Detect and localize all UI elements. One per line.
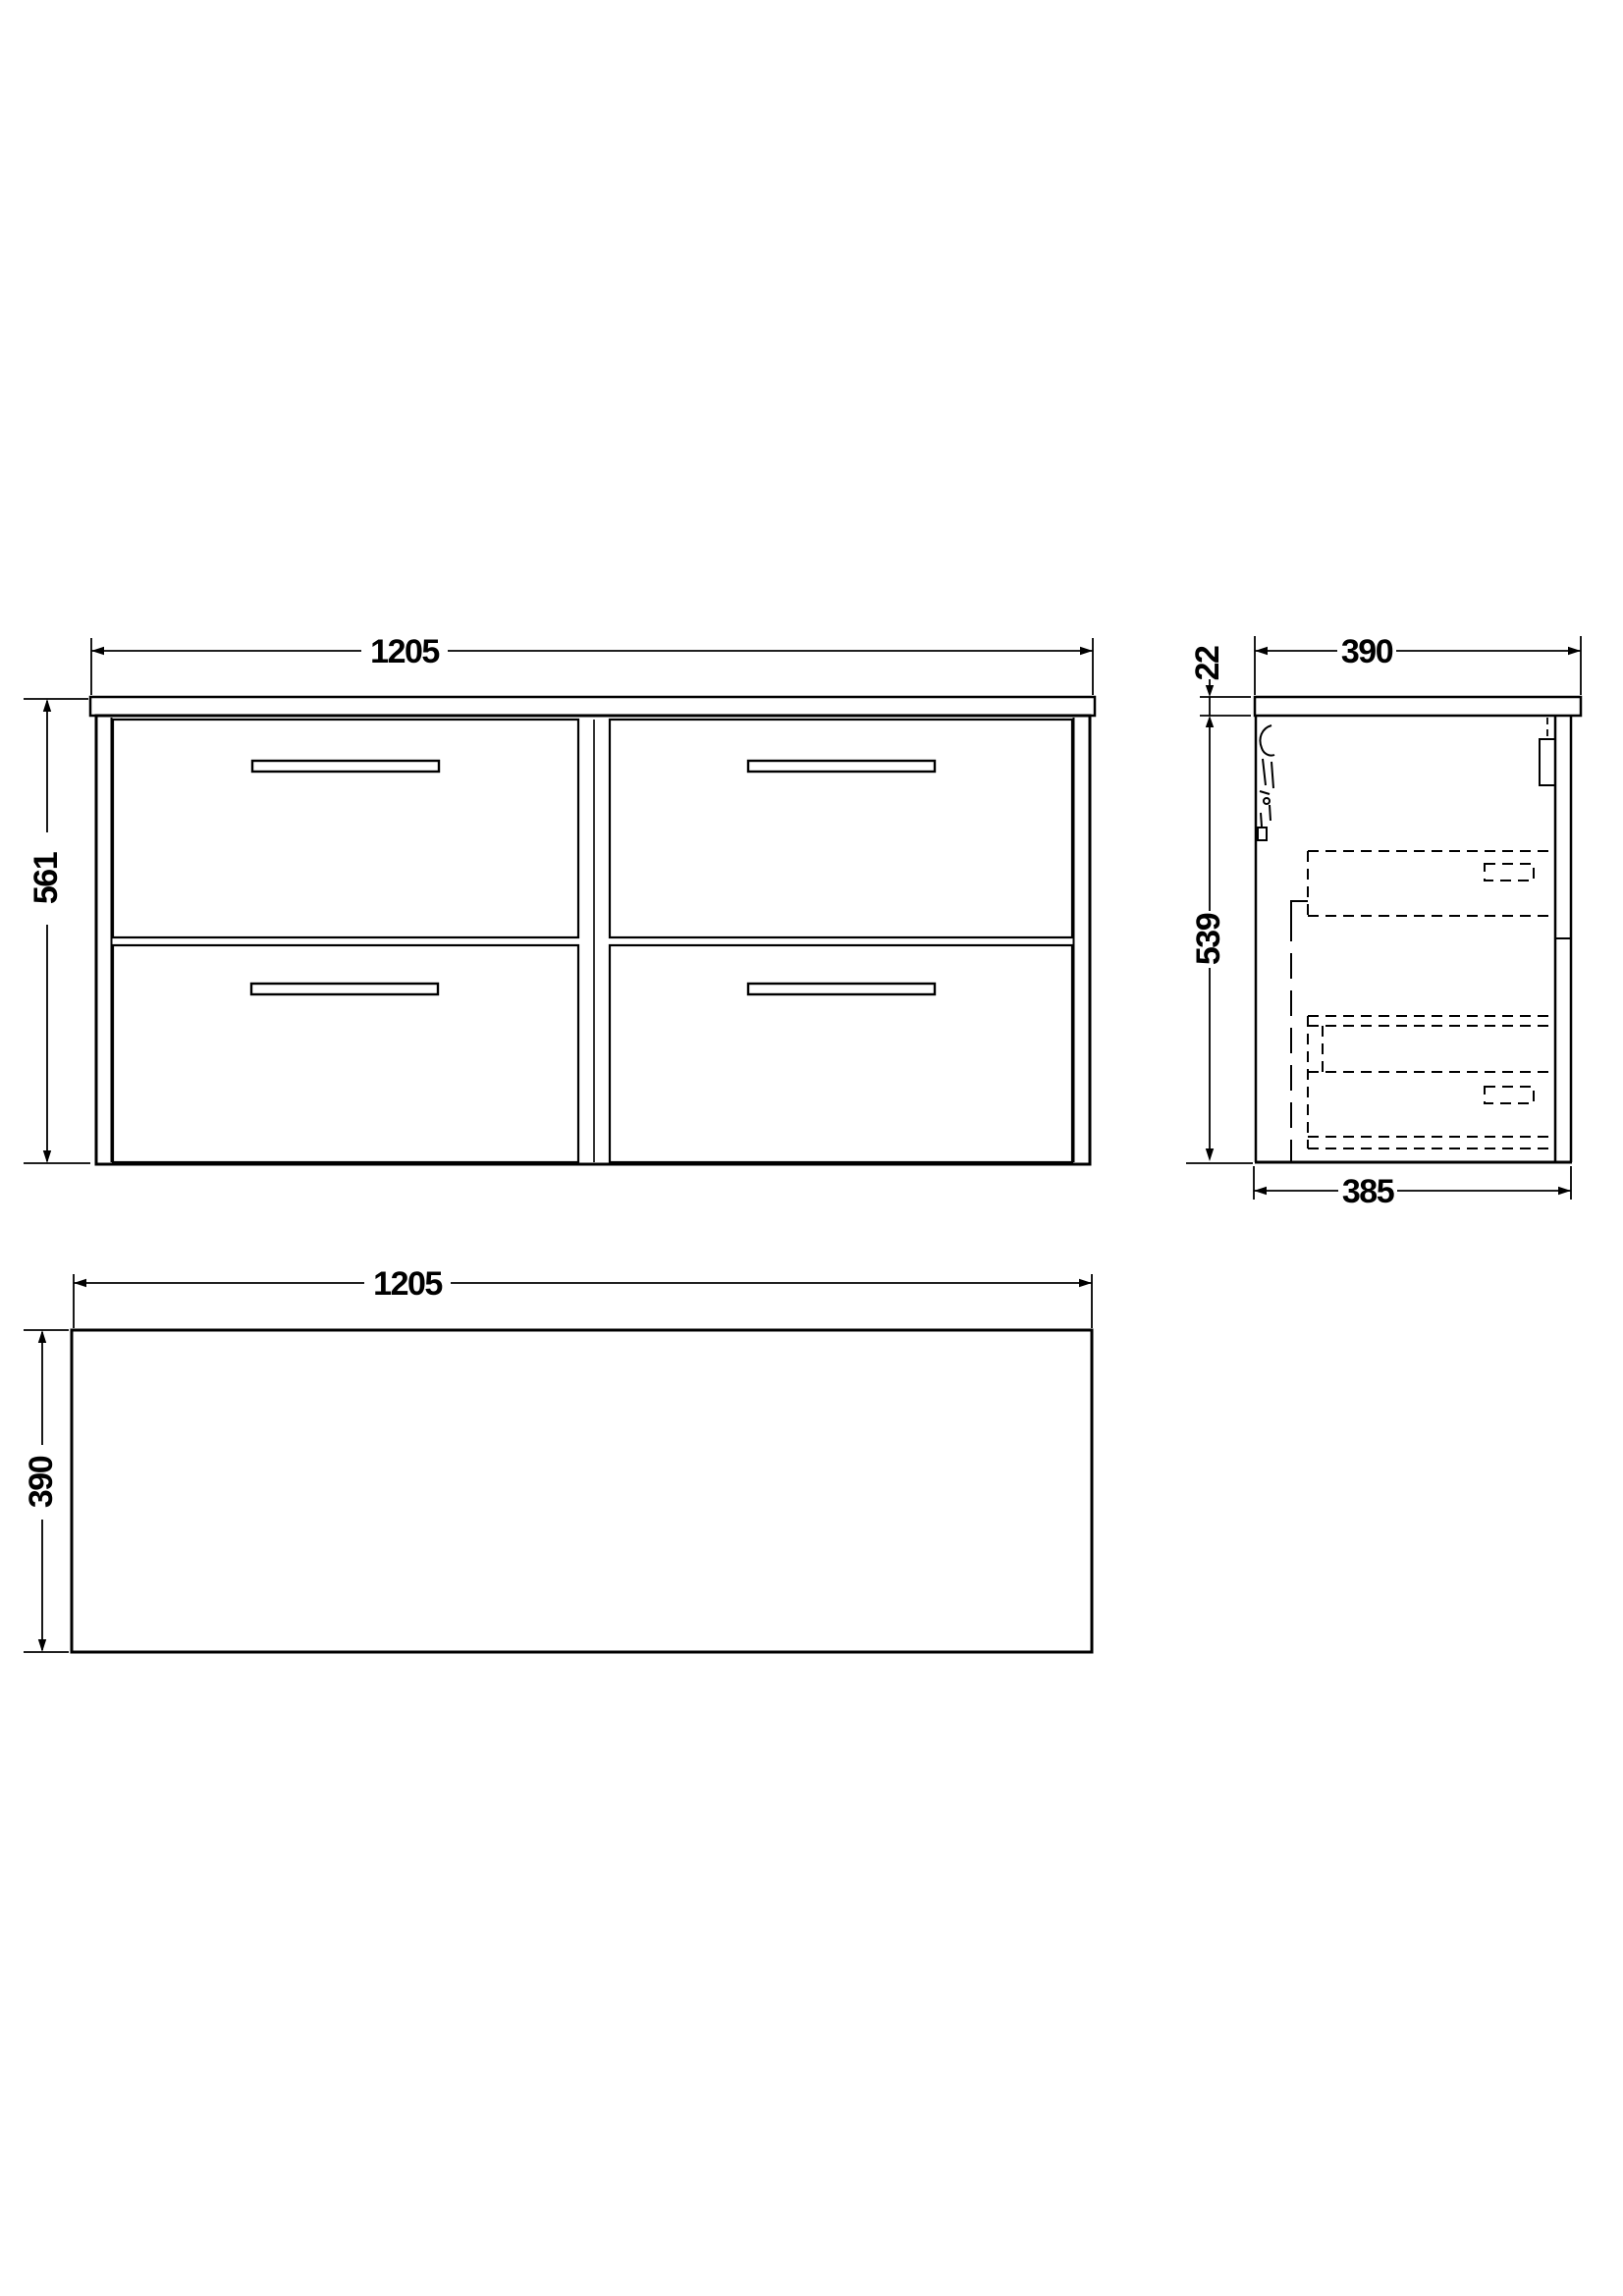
vanity-unit-drawing: 1205 561 — [0, 0, 1623, 2296]
drawer-handle-bottom-left — [251, 984, 438, 994]
drawer-handle-top-right — [748, 761, 935, 772]
technical-drawing-sheet: 1205 561 — [0, 0, 1623, 2296]
front-countertop — [90, 697, 1095, 716]
front-width-label: 1205 — [370, 633, 439, 670]
worktop-thickness-label: 22 — [1189, 646, 1226, 680]
body-depth-label: 385 — [1342, 1173, 1394, 1210]
drawer-handle-bottom-right — [748, 984, 935, 994]
side-depth-label: 390 — [1341, 633, 1393, 670]
plan-depth-label: 390 — [23, 1456, 60, 1508]
plan-width-label: 1205 — [373, 1265, 442, 1303]
wall-bracket-line — [1261, 813, 1262, 827]
side-countertop — [1255, 697, 1581, 716]
front-height-label: 561 — [27, 852, 65, 904]
body-height-label: 539 — [1190, 913, 1227, 965]
drawer-handle-top-left — [252, 761, 439, 772]
wall-bracket-line — [1270, 805, 1271, 821]
